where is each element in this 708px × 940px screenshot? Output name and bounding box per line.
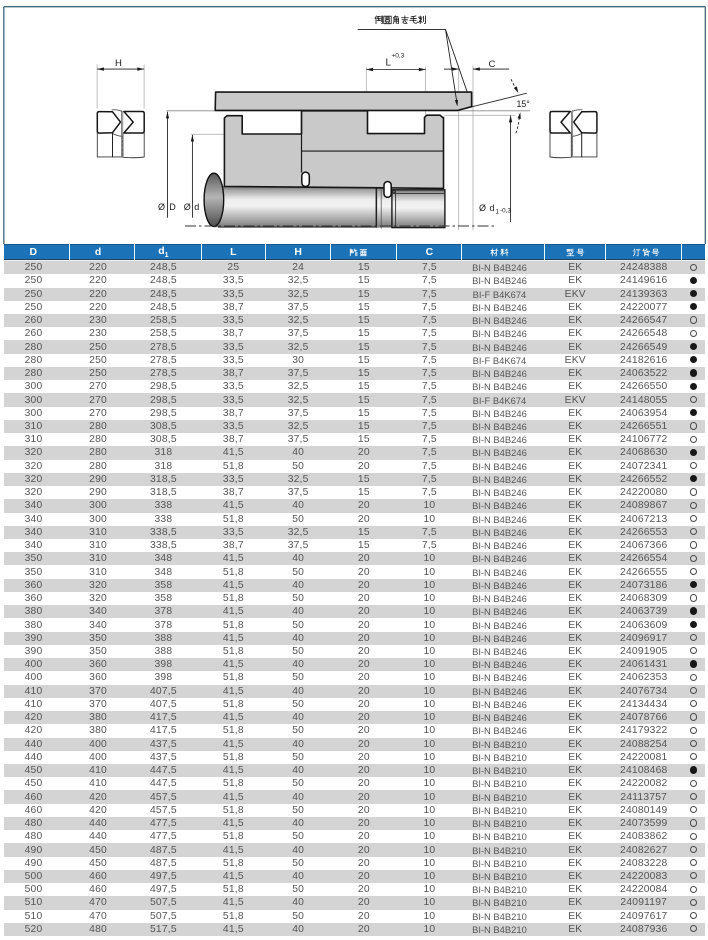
svg-text:H: H [115,58,122,69]
svg-text:+0,3: +0,3 [392,53,405,60]
svg-text:D: D [169,202,176,212]
svg-text:Ø: Ø [479,203,486,213]
svg-text:15°: 15° [517,99,530,109]
svg-text:Ø: Ø [184,202,191,212]
svg-text:C: C [489,59,496,70]
svg-text:1: 1 [496,209,500,216]
svg-text:Ø: Ø [158,202,165,212]
svg-text:d: d [490,203,495,213]
svg-text:d: d [194,202,199,212]
svg-text:-0,3: -0,3 [500,208,511,215]
